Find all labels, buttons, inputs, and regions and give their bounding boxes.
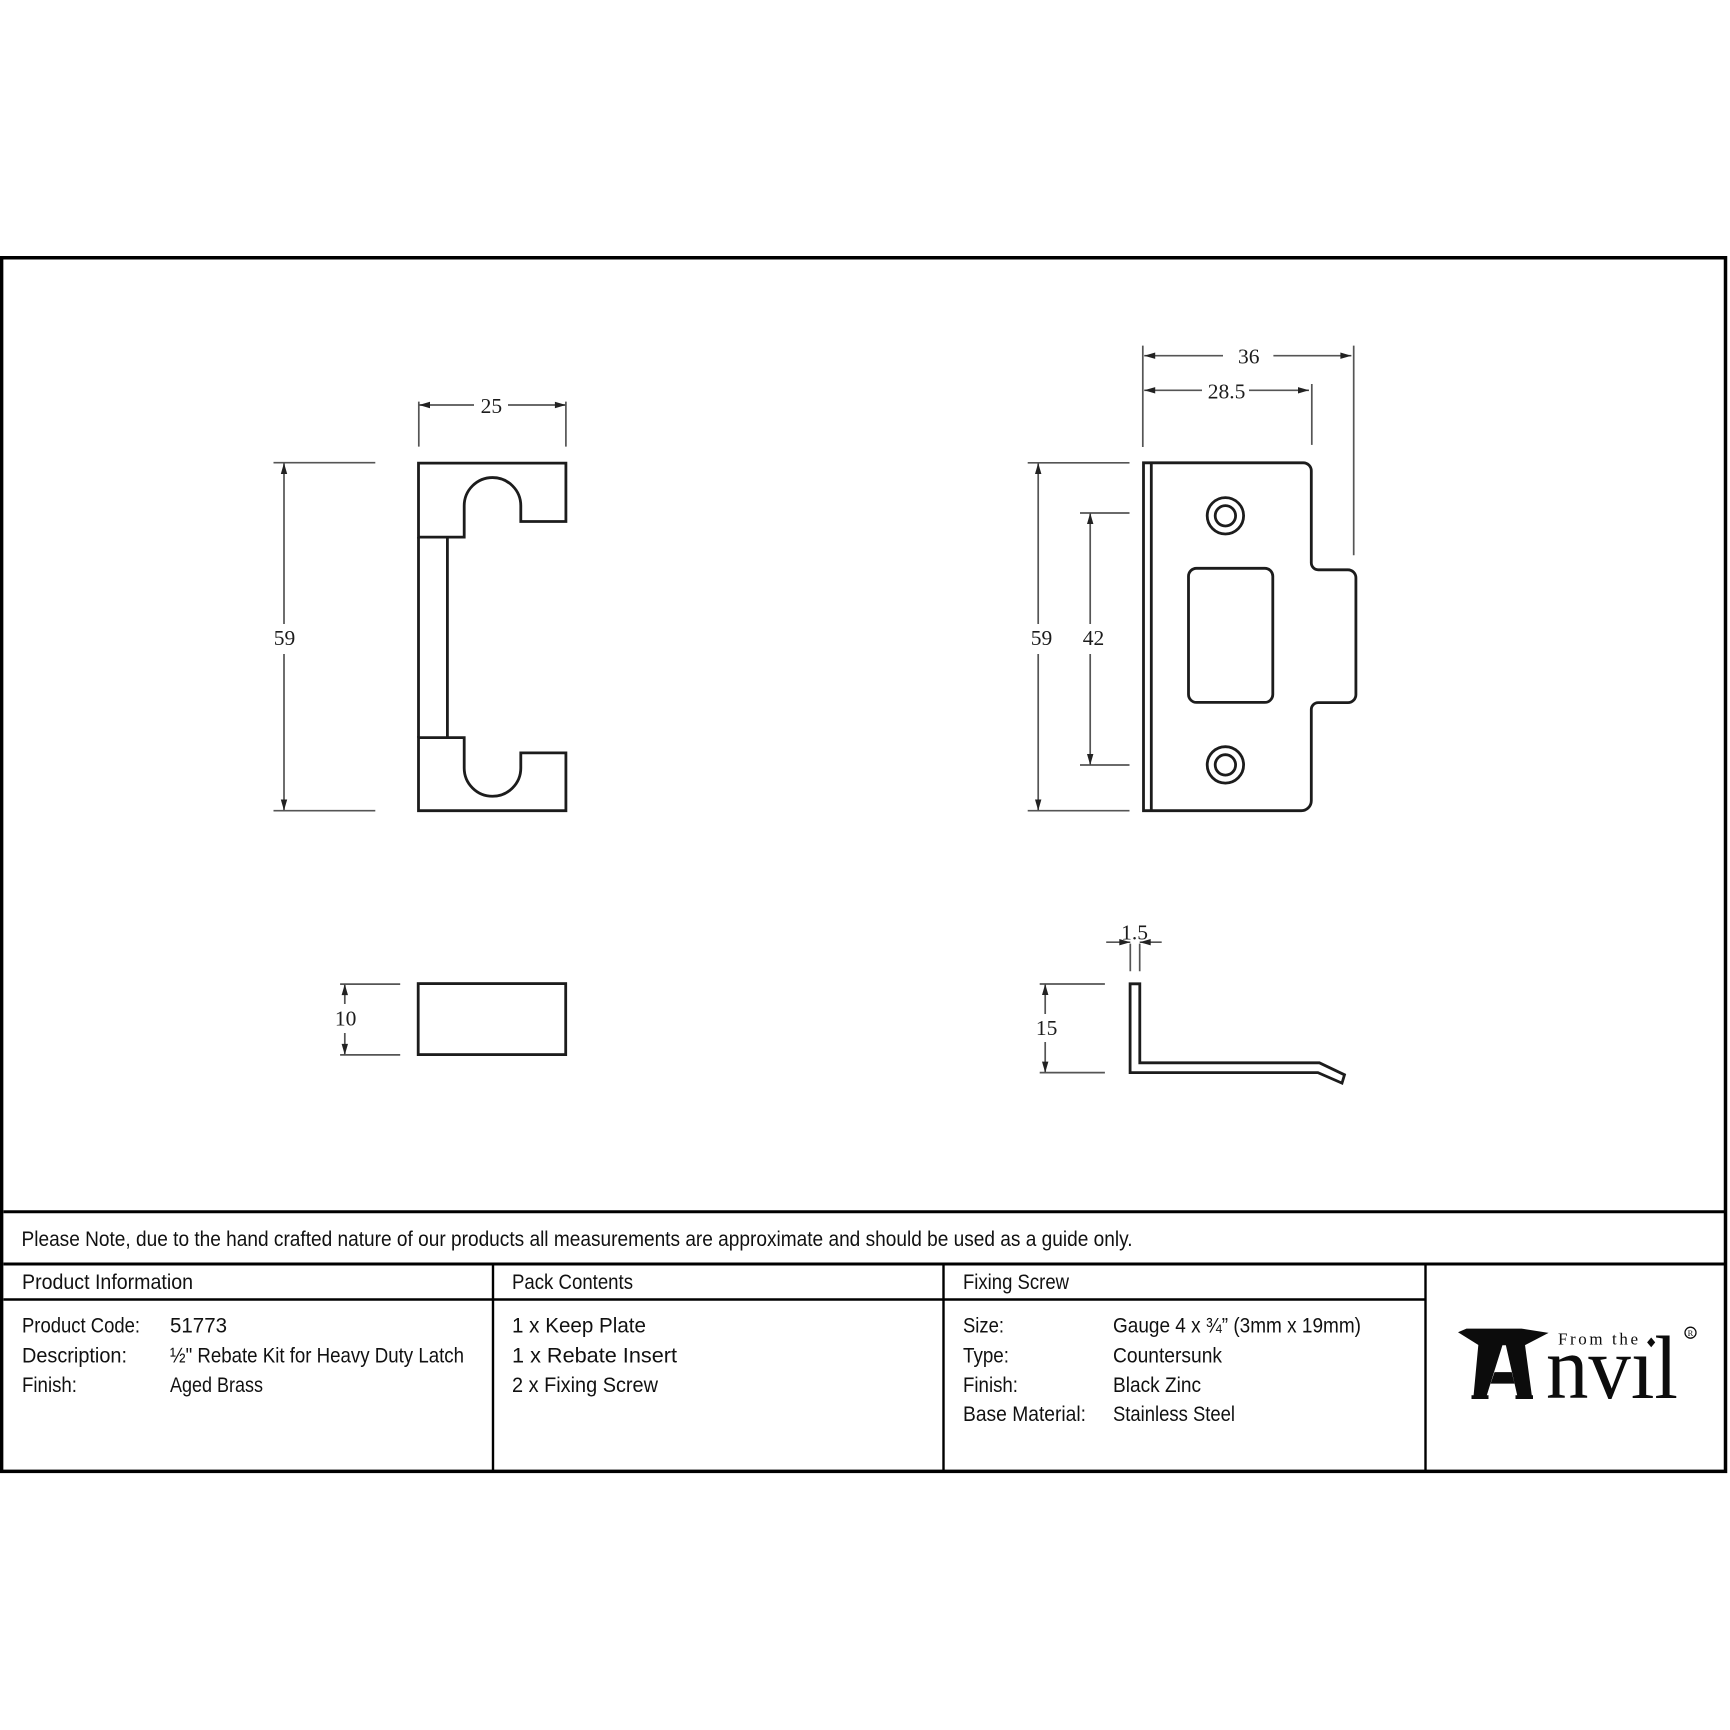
- svg-text:Product Information: Product Information: [22, 1270, 193, 1294]
- svg-text:Fixing Screw: Fixing Screw: [963, 1270, 1069, 1294]
- svg-text:Base Material:: Base Material:: [963, 1402, 1086, 1426]
- svg-text:2 x Fixing Screw: 2 x Fixing Screw: [512, 1373, 658, 1397]
- svg-text:Pack Contents: Pack Contents: [512, 1270, 633, 1294]
- svg-text:25: 25: [481, 394, 503, 418]
- svg-text:Aged Brass: Aged Brass: [170, 1373, 263, 1397]
- svg-text:Stainless Steel: Stainless Steel: [1113, 1402, 1235, 1426]
- svg-text:½" Rebate Kit for Heavy Duty L: ½" Rebate Kit for Heavy Duty Latch: [170, 1344, 464, 1368]
- svg-text:10: 10: [335, 1007, 357, 1031]
- svg-text:Please Note, due to the hand c: Please Note, due to the hand crafted nat…: [22, 1227, 1133, 1251]
- svg-text:Black Zinc: Black Zinc: [1113, 1373, 1201, 1397]
- svg-text:Gauge 4 x ¾” (3mm x 19mm): Gauge 4 x ¾” (3mm x 19mm): [1113, 1314, 1361, 1338]
- svg-text:Description:: Description:: [22, 1344, 127, 1368]
- svg-text:42: 42: [1083, 626, 1105, 650]
- svg-text:1 x Rebate Insert: 1 x Rebate Insert: [512, 1344, 677, 1368]
- svg-text:28.5: 28.5: [1208, 380, 1246, 404]
- svg-text:Type:: Type:: [963, 1344, 1009, 1368]
- svg-text:59: 59: [1031, 626, 1053, 650]
- svg-text:59: 59: [274, 626, 296, 650]
- svg-text:Finish:: Finish:: [22, 1373, 77, 1397]
- svg-text:R: R: [1688, 1328, 1694, 1338]
- svg-text:1.5: 1.5: [1121, 921, 1148, 945]
- svg-text:Finish:: Finish:: [963, 1373, 1018, 1397]
- svg-text:1 x Keep Plate: 1 x Keep Plate: [512, 1314, 646, 1338]
- svg-text:Size:: Size:: [963, 1314, 1004, 1338]
- svg-text:51773: 51773: [170, 1314, 227, 1338]
- svg-text:15: 15: [1036, 1016, 1058, 1040]
- svg-text:Countersunk: Countersunk: [1113, 1344, 1222, 1368]
- svg-text:Product Code:: Product Code:: [22, 1314, 140, 1338]
- svg-text:36: 36: [1238, 345, 1260, 369]
- svg-text:nvıl: nvıl: [1546, 1319, 1678, 1418]
